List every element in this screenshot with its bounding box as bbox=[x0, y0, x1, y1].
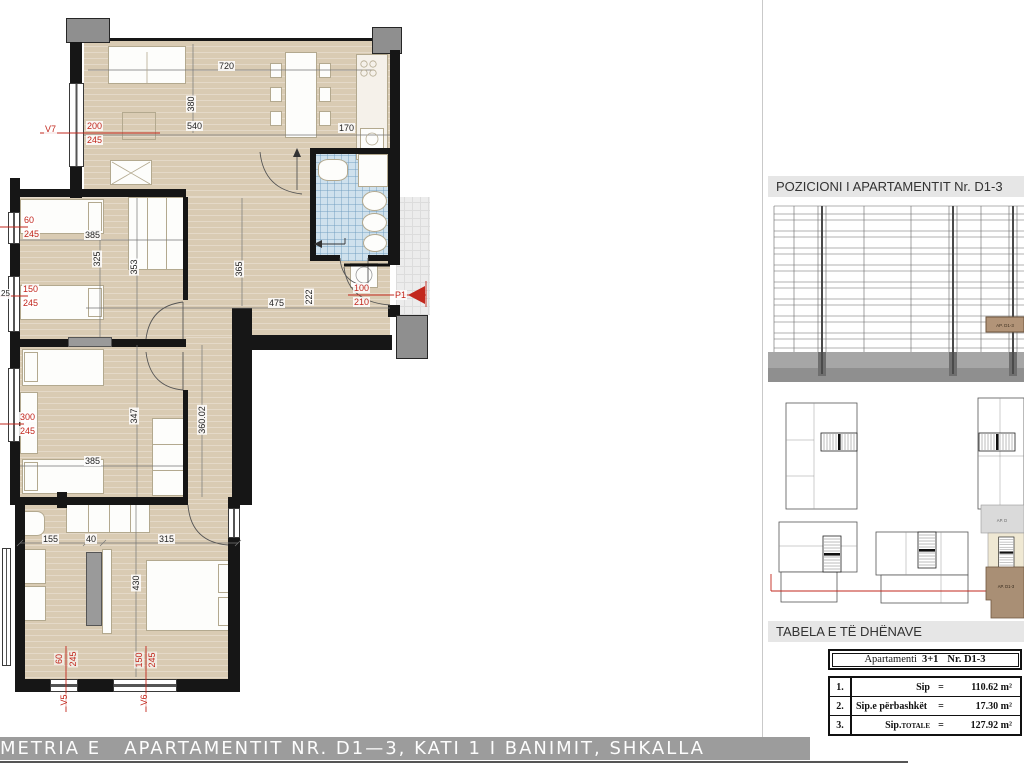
apartment-label: AP. D1-3 bbox=[998, 584, 1015, 589]
dim-master-seg1: 155 bbox=[42, 534, 59, 544]
concrete-column bbox=[396, 315, 428, 359]
bath-sink bbox=[318, 159, 348, 181]
window-height: 245 bbox=[23, 229, 40, 239]
window-label: V5 bbox=[59, 693, 69, 706]
pillow bbox=[88, 202, 102, 231]
dim-hall-width: 475 bbox=[268, 298, 285, 308]
chair bbox=[270, 63, 282, 78]
window-height: 245 bbox=[68, 650, 78, 667]
bathroom-wall bbox=[310, 255, 340, 261]
row-label: Sip. bbox=[885, 720, 901, 731]
wall-segment bbox=[10, 332, 20, 368]
kitchen-sink bbox=[360, 128, 384, 150]
sofa bbox=[108, 46, 186, 84]
dim-living-inner: 540 bbox=[186, 121, 203, 131]
wall-segment bbox=[10, 442, 20, 503]
table-header-number: Nr. D1-3 bbox=[947, 654, 985, 665]
row-value: 127.92 m² bbox=[948, 720, 1020, 731]
window-width: 200 bbox=[86, 121, 103, 131]
site-key-plan: AP. D AP. D1-3 bbox=[766, 396, 1024, 624]
sheet-title-text: METRIA E APARTAMENTIT NR. D1—3, KATI 1 I… bbox=[0, 738, 705, 759]
wall-segment bbox=[183, 197, 188, 300]
window-height: 245 bbox=[22, 298, 39, 308]
row-number: 1. bbox=[830, 678, 852, 696]
wall-segment bbox=[390, 50, 400, 153]
dim-living-depth: 380 bbox=[186, 95, 196, 112]
table-header-word: Apartamenti bbox=[864, 654, 916, 665]
window-width: 60 bbox=[23, 215, 35, 225]
dining-table bbox=[285, 52, 317, 138]
wardrobe bbox=[66, 504, 150, 533]
shelf bbox=[102, 549, 112, 634]
dim-master-seg3: 315 bbox=[158, 534, 175, 544]
wall-segment bbox=[106, 38, 376, 41]
pillow bbox=[88, 288, 102, 317]
desk bbox=[20, 392, 38, 454]
position-section-title: POZICIONI I APARTAMENTIT Nr. D1-3 bbox=[768, 176, 1024, 197]
building-elevation: AP. D1-3 bbox=[766, 202, 1024, 394]
adjacent-apartment-label: AP. D bbox=[997, 518, 1007, 523]
pillow bbox=[24, 352, 38, 382]
dim-living-width: 720 bbox=[218, 61, 235, 71]
window-width: 150 bbox=[22, 284, 39, 294]
table-body: 1. Sip = 110.62 m² 2. Sip.e përbashkët =… bbox=[828, 676, 1022, 736]
wall-segment bbox=[57, 492, 67, 508]
table-row: 3. Sip.TOTALE = 127.92 m² bbox=[830, 716, 1020, 734]
shower bbox=[358, 154, 388, 187]
row-number: 3. bbox=[830, 716, 852, 734]
dim-kitchen: 170 bbox=[338, 123, 355, 133]
panel-divider bbox=[762, 0, 763, 737]
window-v7 bbox=[69, 83, 84, 167]
floor-plan: V7 200 245 60 245 150 245 300 245 100 21… bbox=[0, 0, 440, 730]
table-row: 2. Sip.e përbashkët = 17.30 m² bbox=[830, 697, 1020, 716]
wall-segment bbox=[388, 153, 400, 265]
chair bbox=[319, 87, 331, 102]
dim-bedroom1-depth1: 325 bbox=[92, 250, 102, 267]
chair bbox=[319, 111, 331, 126]
row-number: 2. bbox=[830, 697, 852, 715]
bathroom-wall bbox=[368, 255, 398, 261]
window-label: V7 bbox=[44, 124, 57, 134]
window-width: 300 bbox=[19, 412, 36, 422]
dim-bedroom2-width: 385 bbox=[84, 456, 101, 466]
row-label-sub: TOTALE bbox=[901, 722, 930, 730]
table-header-box: Apartamenti 3+1 Nr. D1-3 bbox=[828, 649, 1022, 670]
wall-segment bbox=[183, 390, 188, 497]
bathroom-wall bbox=[310, 148, 316, 261]
dim-master-seg2: 40 bbox=[85, 534, 97, 544]
wall-segment bbox=[10, 189, 186, 197]
tv-cabinet bbox=[86, 552, 102, 626]
table-section-title: TABELA E TË DHËNAVE bbox=[768, 621, 1024, 642]
chair bbox=[270, 87, 282, 102]
sliding-door bbox=[68, 337, 112, 347]
dim-hall-depth: 365 bbox=[234, 260, 244, 277]
concrete-column bbox=[66, 18, 110, 43]
bidet bbox=[362, 213, 387, 232]
dim-bedroom1-depth2: 353 bbox=[129, 258, 139, 275]
sheet-title-bar: METRIA E APARTAMENTIT NR. D1—3, KATI 1 I… bbox=[0, 737, 810, 760]
corridor-floor bbox=[186, 337, 232, 503]
row-value: 17.30 m² bbox=[948, 701, 1020, 712]
wall-segment bbox=[10, 497, 188, 505]
dim-wall-thickness: 25 bbox=[0, 289, 11, 299]
window-150 bbox=[8, 276, 20, 332]
pillow bbox=[24, 462, 38, 491]
window-v5 bbox=[50, 679, 78, 692]
toilet bbox=[362, 191, 387, 211]
table-header-type: 3+1 bbox=[922, 654, 938, 665]
wall-segment bbox=[10, 178, 20, 212]
coffee-table bbox=[122, 112, 156, 140]
wall-segment bbox=[10, 244, 20, 276]
wall-segment bbox=[15, 503, 25, 679]
window-height: 245 bbox=[147, 651, 157, 668]
toilet bbox=[363, 234, 387, 252]
row-label: Sip bbox=[916, 682, 930, 693]
window-height: 245 bbox=[86, 135, 103, 145]
window-60 bbox=[8, 212, 20, 244]
bathroom-wall bbox=[310, 148, 398, 154]
window-label: V6 bbox=[139, 693, 149, 706]
drawing-sheet: V7 200 245 60 245 150 245 300 245 100 21… bbox=[0, 0, 1024, 768]
chair bbox=[319, 63, 331, 78]
window-v6 bbox=[113, 679, 177, 692]
equals-sign: = bbox=[934, 720, 948, 731]
wardrobe bbox=[152, 418, 185, 496]
armchair bbox=[110, 160, 152, 185]
entrance-door-height: 210 bbox=[353, 297, 370, 307]
dim-bedroom2-depth: 347 bbox=[129, 407, 139, 424]
dim-bedroom1-width: 385 bbox=[84, 230, 101, 240]
row-value: 110.62 m² bbox=[948, 682, 1020, 693]
dim-corridor-length: 360.02 bbox=[197, 405, 207, 435]
table-title-text: TABELA E TË DHËNAVE bbox=[776, 624, 922, 639]
position-title-text: POZICIONI I APARTAMENTIT Nr. D1-3 bbox=[776, 179, 1003, 194]
dim-master-depth: 430 bbox=[131, 574, 141, 591]
entrance-door-label: P1 bbox=[394, 290, 407, 300]
row-label: Sip.e përbashkët bbox=[856, 701, 927, 712]
elevation-tag-label: AP. D1-3 bbox=[996, 323, 1014, 328]
table-row: 1. Sip = 110.62 m² bbox=[830, 678, 1020, 697]
apartment-highlight-site bbox=[986, 567, 1024, 618]
equals-sign: = bbox=[934, 682, 948, 693]
entrance-door-width: 100 bbox=[353, 283, 370, 293]
chair bbox=[270, 111, 282, 126]
window bbox=[2, 548, 11, 666]
window bbox=[228, 508, 240, 538]
wall-segment bbox=[232, 308, 252, 500]
window-height: 245 bbox=[19, 426, 36, 436]
wall-segment bbox=[70, 42, 82, 83]
window-width: 60 bbox=[54, 653, 64, 665]
dim-hall-jog: 222 bbox=[304, 288, 314, 305]
wall-segment bbox=[252, 335, 392, 350]
window-width: 150 bbox=[134, 651, 144, 668]
title-bar-underline bbox=[0, 761, 908, 763]
equals-sign: = bbox=[934, 701, 948, 712]
